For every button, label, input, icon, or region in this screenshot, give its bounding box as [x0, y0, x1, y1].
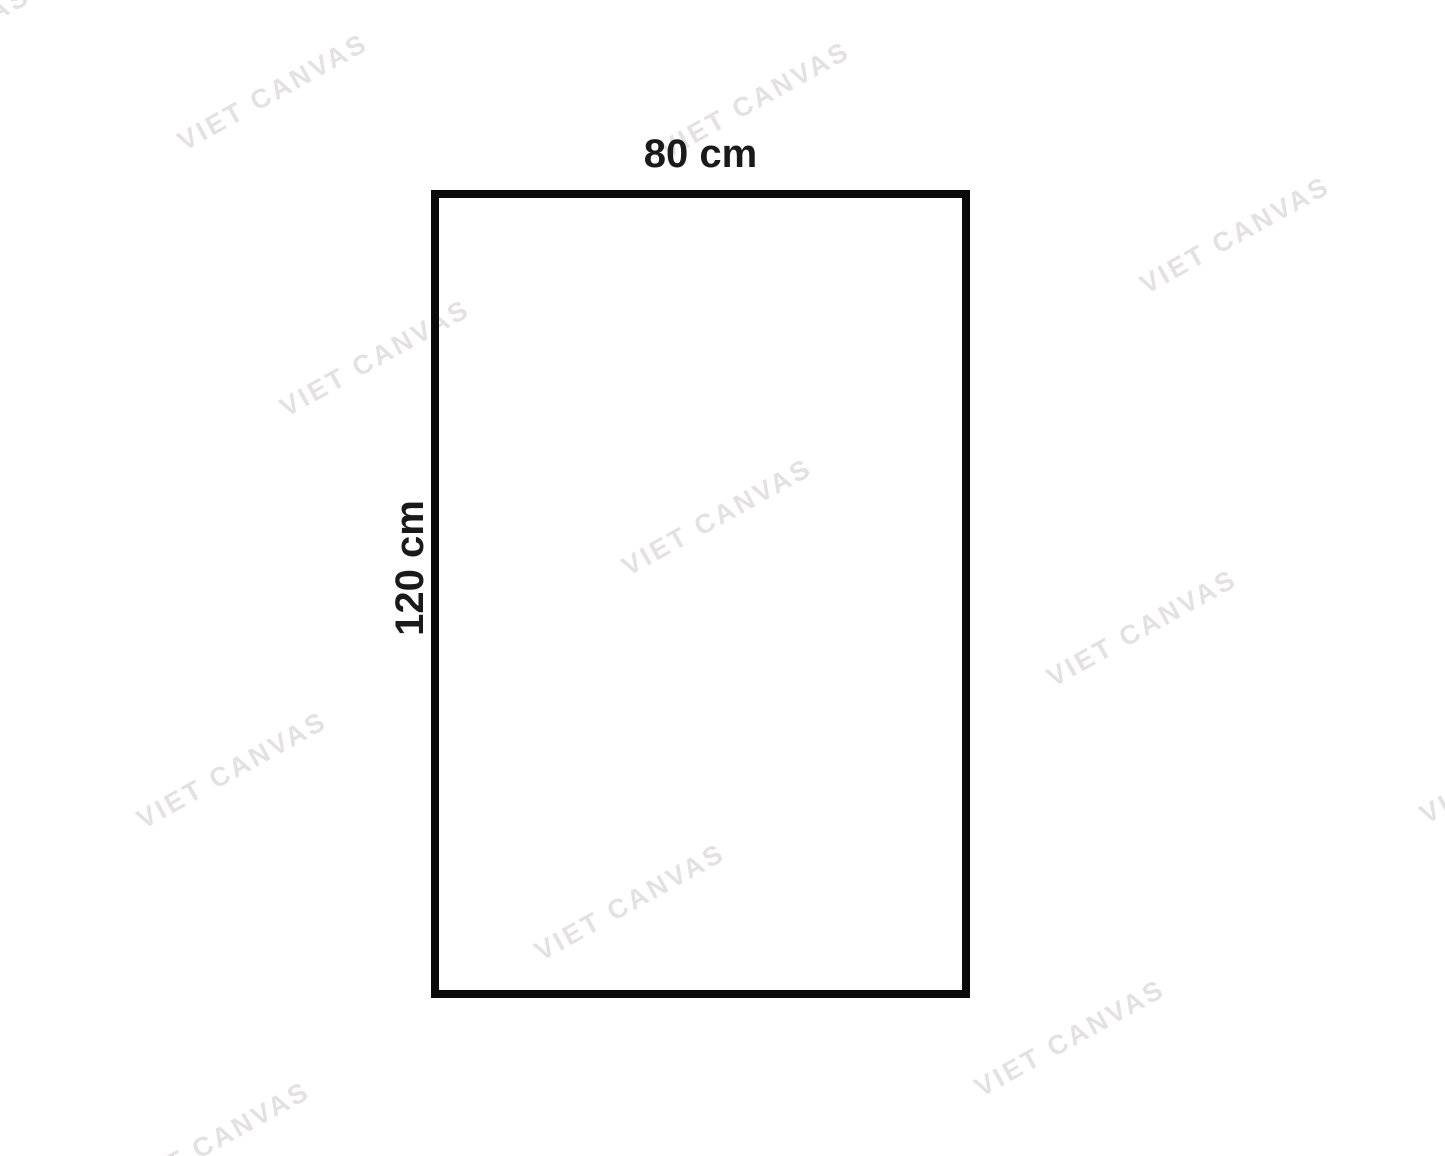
watermark-text: VIET CANVAS [1010, 543, 1274, 714]
height-dimension-label: 120 cm [384, 448, 436, 688]
watermark-text: VIET CANVAS [83, 1055, 347, 1156]
watermark-text: VIET CANVAS [0, 0, 67, 130]
size-rectangle [431, 190, 970, 998]
watermark-text: VIET CANVAS [141, 7, 405, 178]
watermark-text: VIET CANVAS [1103, 150, 1367, 321]
watermark-text: VIET CANVAS [1383, 680, 1445, 851]
diagram-canvas: VIET CANVASVIET CANVASVIET CANVASVIET CA… [0, 0, 1445, 1156]
watermark-text: VIET CANVAS [938, 953, 1202, 1124]
width-dimension-label: 80 cm [431, 128, 970, 180]
watermark-text: VIET CANVAS [100, 685, 364, 856]
